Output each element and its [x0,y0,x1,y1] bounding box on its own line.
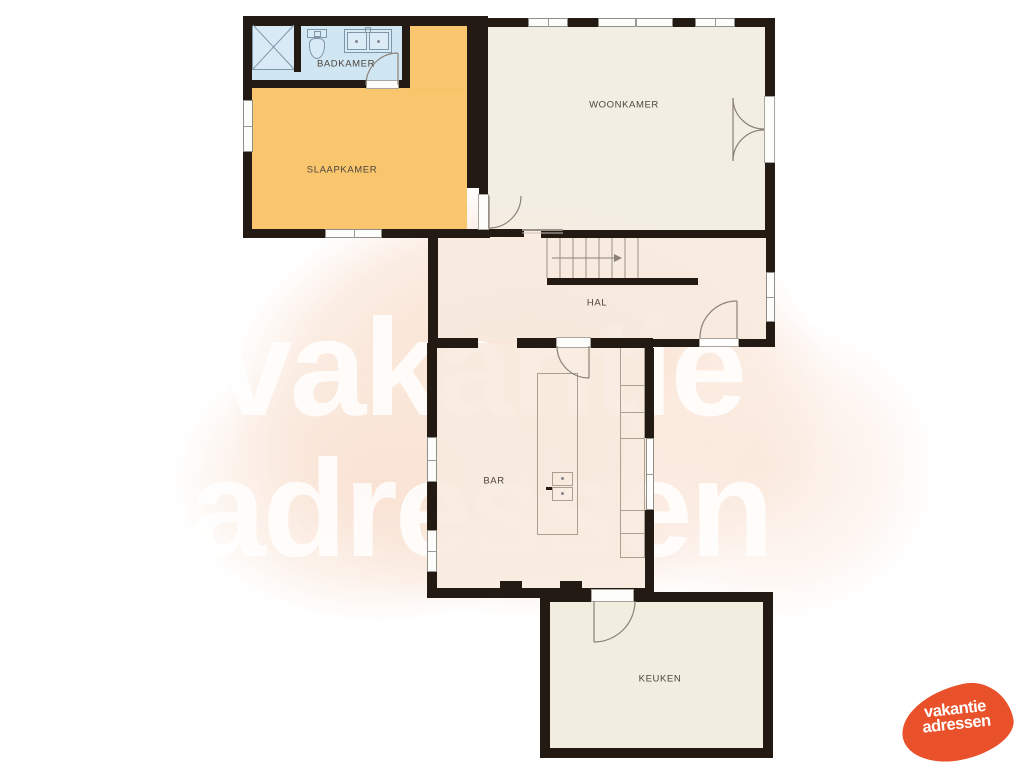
door-arc-entrance [700,301,737,338]
room-label-woonkamer: WOONKAMER [589,100,659,111]
door-arc-keuken [594,601,635,642]
door-arc-french-top [733,98,764,129]
room-label-badkamer: BADKAMER [317,59,375,70]
room-label-keuken: KEUKEN [639,674,682,685]
stairs-arrow-head [614,254,622,262]
door-arc-french-bottom [733,130,764,161]
door-arc-bar [557,346,589,378]
floorplan-canvas: vakantie adressen [0,0,1024,768]
room-label-hal: HAL [587,298,607,309]
room-label-slaapkamer: SLAAPKAMER [307,165,377,176]
plan-linework [0,0,1024,768]
door-arc-slaapkamer [489,196,521,228]
room-label-bar: BAR [483,476,504,487]
